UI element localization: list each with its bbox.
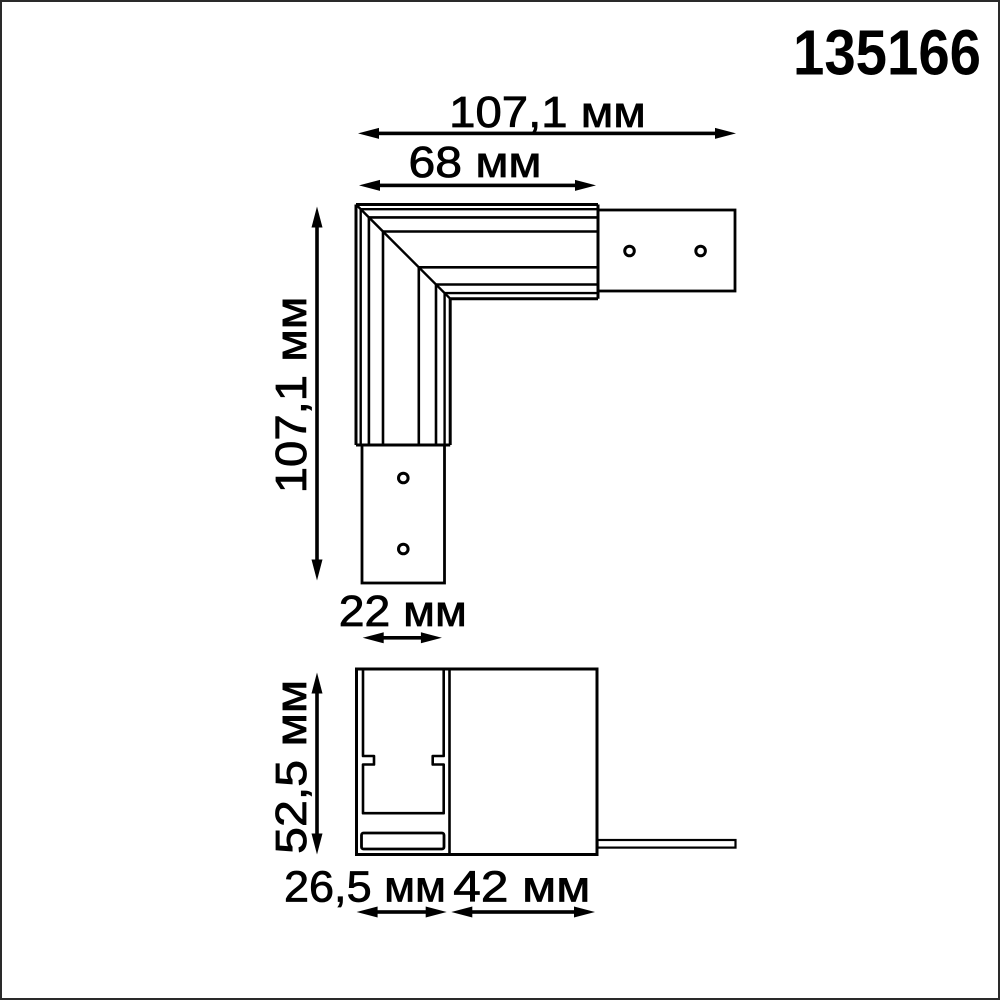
svg-text:135166: 135166 (793, 17, 981, 89)
svg-text:52,5 мм: 52,5 мм (267, 680, 316, 854)
svg-text:107,1 мм: 107,1 мм (267, 297, 316, 494)
svg-text:22 мм: 22 мм (339, 587, 467, 636)
svg-text:107,1 мм: 107,1 мм (449, 88, 646, 137)
svg-text:68 мм: 68 мм (409, 138, 542, 187)
svg-text:42 мм: 42 мм (453, 863, 590, 912)
svg-text:26,5 мм: 26,5 мм (284, 863, 446, 912)
